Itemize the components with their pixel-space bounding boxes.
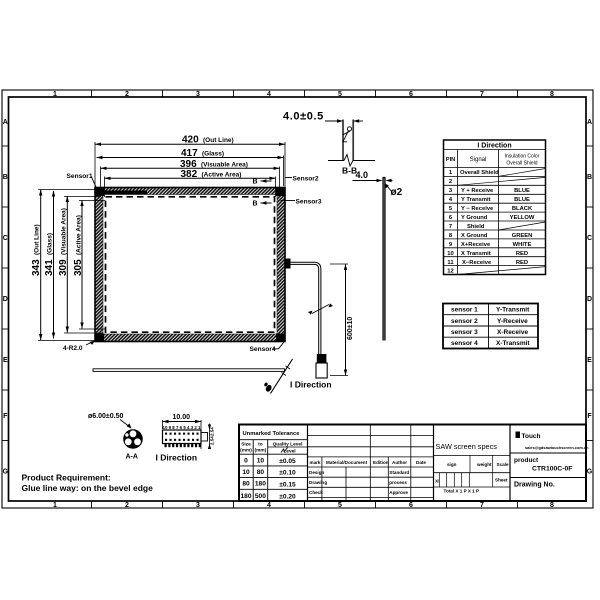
svg-text:Material/Document: Material/Document [326,460,368,465]
svg-text:Sensor4: Sensor4 [250,346,276,353]
svg-text:Drawing: Drawing [309,480,327,485]
svg-text:Sheet: Sheet [495,478,508,483]
svg-text:(Visuable Area): (Visuable Area) [201,162,248,169]
svg-text:(Out Line): (Out Line) [34,224,41,255]
svg-text:10: 10 [242,469,250,476]
svg-text:PIN: PIN [446,157,455,163]
svg-text:ø2: ø2 [391,187,403,198]
svg-text:GREEN: GREEN [512,233,533,239]
svg-text:Total X 1 P X 1 P: Total X 1 P X 1 P [444,489,480,494]
svg-text:600±10: 600±10 [347,317,354,340]
svg-text:±0.05: ±0.05 [279,458,296,465]
svg-text:I Direction: I Direction [477,143,511,150]
svg-text:to: to [258,442,263,448]
svg-text:2: 2 [449,179,452,185]
svg-text:RED: RED [516,260,528,266]
svg-text:F: F [587,413,592,420]
svg-text:G: G [3,469,9,476]
svg-text:4.0±0.5: 4.0±0.5 [283,111,324,123]
svg-text:Overall Shield: Overall Shield [506,161,537,167]
svg-text:BLACK: BLACK [512,206,533,212]
svg-text:XI: XI [435,479,440,485]
svg-text:0: 0 [244,457,248,464]
svg-text:Sensor2: Sensor2 [293,175,319,182]
svg-text:8: 8 [550,91,554,98]
svg-text:4.0: 4.0 [356,170,369,180]
svg-text:5: 5 [338,91,342,98]
svg-text:RED: RED [516,251,528,257]
svg-text:sensor 3: sensor 3 [451,329,478,336]
svg-text:2.54: 2.54 [210,427,215,436]
svg-text:309: 309 [58,259,69,276]
svg-text:B-B: B-B [342,166,357,176]
svg-text:7: 7 [480,502,484,509]
svg-text:A-A: A-A [126,454,138,461]
svg-text:A: A [587,119,592,126]
svg-text:X Ground: X Ground [461,233,488,239]
svg-text:Overall Shield: Overall Shield [460,170,499,176]
svg-text:B: B [3,174,8,181]
svg-text:Product Requirement:: Product Requirement: [22,473,111,483]
svg-text:mark: mark [310,460,321,465]
svg-text:305: 305 [73,259,84,276]
svg-text:(Active Area): (Active Area) [76,215,83,255]
svg-text:I Direction: I Direction [156,453,198,463]
svg-text:X−Receive: X−Receive [462,260,492,266]
svg-text:Quality Level: Quality Level [273,441,303,447]
svg-text:F: F [3,413,8,420]
svg-text:Size: Size [241,442,251,448]
svg-text:Approve: Approve [389,490,408,495]
svg-text:D: D [3,296,8,303]
svg-text:±0.10: ±0.10 [279,470,296,477]
svg-text:10: 10 [257,457,265,464]
svg-text:sensor 4: sensor 4 [451,340,478,347]
svg-text:X+Receive: X+Receive [461,242,491,248]
svg-text:Check: Check [309,490,323,495]
svg-text:Touch: Touch [522,433,541,440]
svg-text:WHITE: WHITE [513,242,532,248]
svg-text:C: C [3,235,8,242]
svg-text:Unmarked Tolerance: Unmarked Tolerance [243,431,301,437]
svg-text:11: 11 [447,260,454,266]
svg-text:80: 80 [242,481,250,488]
svg-text:2: 2 [125,502,129,509]
svg-text:(mm): (mm) [255,448,267,454]
svg-text:Y − Receive: Y − Receive [461,206,494,212]
svg-text:Sensor3: Sensor3 [296,198,322,205]
svg-text:5: 5 [338,502,342,509]
svg-text:A: A [3,119,8,126]
svg-text:Author: Author [392,460,407,465]
svg-text:Date: Date [416,460,426,465]
svg-text:1: 1 [53,502,57,509]
svg-text:±0.15: ±0.15 [279,481,296,488]
svg-text:G: G [587,469,593,476]
svg-text:Sensor1: Sensor1 [67,173,93,180]
svg-text:ø6.00±0.50: ø6.00±0.50 [88,413,123,420]
svg-text:(mm): (mm) [240,448,252,454]
svg-text:Standard: Standard [389,470,409,475]
svg-text:C: C [587,235,592,242]
svg-text:B: B [253,179,258,186]
svg-text:7: 7 [480,91,484,98]
svg-text:Signal: Signal [470,157,487,163]
svg-text:product: product [514,457,539,464]
svg-text:382: 382 [181,169,198,180]
svg-text:Y-Transmit: Y-Transmit [496,307,530,314]
svg-text:417: 417 [181,148,198,159]
svg-text:(Glass): (Glass) [47,233,54,255]
svg-text:E: E [3,357,8,364]
svg-text:Glue line way: on the bevel ed: Glue line way: on the bevel edge [22,483,154,493]
svg-text:SAW screen specs: SAW screen specs [436,442,498,451]
svg-text:343: 343 [31,259,42,276]
svg-text:3: 3 [196,91,200,98]
svg-text:I Direction: I Direction [290,380,332,390]
svg-text:weight: weight [476,462,492,467]
svg-text:7: 7 [449,224,452,230]
svg-text:sales@gdsawtouchscreen.com.cn: sales@gdsawtouchscreen.com.cn [525,445,589,450]
svg-text:sign: sign [447,462,457,467]
svg-text:(Glass): (Glass) [202,151,224,158]
svg-text:sensor 1: sensor 1 [451,307,478,314]
svg-text:X-Receive: X-Receive [497,329,528,336]
svg-text:12: 12 [447,269,453,275]
svg-text:3: 3 [196,502,200,509]
svg-text:4: 4 [267,91,271,98]
svg-text:8: 8 [550,502,554,509]
svg-text:500: 500 [255,493,266,500]
svg-text:±0.20: ±0.20 [279,494,296,501]
svg-text:E: E [587,357,592,364]
svg-text:6: 6 [409,91,413,98]
svg-text:BLUE: BLUE [514,197,530,203]
svg-text:2: 2 [125,91,129,98]
svg-text:10 9 8 7 6 5 4 3 2 1: 10 9 8 7 6 5 4 3 2 1 [163,425,202,430]
svg-text:(Visuable Area): (Visuable Area) [61,208,68,255]
svg-text:10: 10 [447,251,453,257]
svg-text:D: D [587,296,592,303]
svg-text:341: 341 [44,259,55,276]
svg-text:process: process [389,480,407,485]
svg-text:Level: Level [283,449,295,455]
svg-text:sensor 2: sensor 2 [451,318,478,325]
svg-text:(Active Area): (Active Area) [202,172,242,179]
svg-text:Drawing No.: Drawing No. [514,482,555,489]
svg-text:Y-Receive: Y-Receive [497,318,528,325]
svg-text:B: B [253,201,258,208]
svg-text:X Transmit: X Transmit [461,251,491,257]
svg-text:Design: Design [309,470,325,475]
svg-text:180: 180 [255,481,266,488]
svg-text:6: 6 [409,502,413,509]
svg-text:4: 4 [267,502,271,509]
svg-text:1: 1 [53,91,57,98]
svg-text:Y Ground: Y Ground [461,215,488,221]
svg-text:(Out Line): (Out Line) [203,137,234,144]
svg-text:420: 420 [182,135,199,146]
svg-text:Y + Receive: Y + Receive [461,188,494,194]
svg-text:Edition: Edition [373,460,389,465]
svg-text:B: B [587,174,592,181]
svg-text:BLUE: BLUE [514,188,530,194]
svg-text:YELLOW: YELLOW [510,215,535,221]
svg-text:X-Transmit: X-Transmit [496,340,530,347]
svg-text:2.54: 2.54 [210,436,215,445]
svg-text:80: 80 [257,469,265,476]
svg-text:Y Transmit: Y Transmit [461,197,491,203]
svg-text:180: 180 [240,493,251,500]
svg-text:Insulation Color: Insulation Color [505,154,540,160]
svg-text:10.00: 10.00 [173,414,191,421]
svg-text:4-R2.0: 4-R2.0 [63,345,83,352]
svg-text:CTR100C-0F: CTR100C-0F [532,466,572,473]
svg-text:Shield: Shield [467,224,485,230]
svg-text:Scale: Scale [497,462,509,467]
